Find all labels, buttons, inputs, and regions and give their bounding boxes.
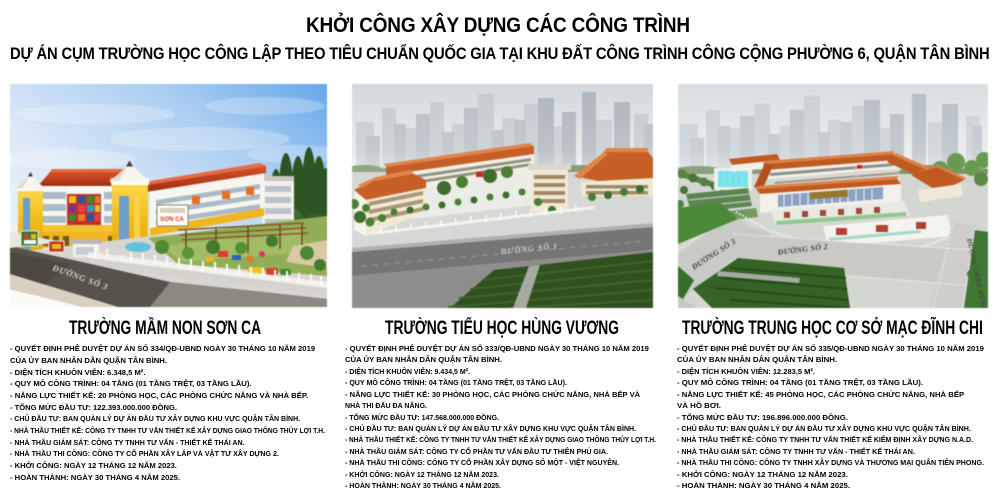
svg-text:SƠN CA: SƠN CA [160,217,184,223]
